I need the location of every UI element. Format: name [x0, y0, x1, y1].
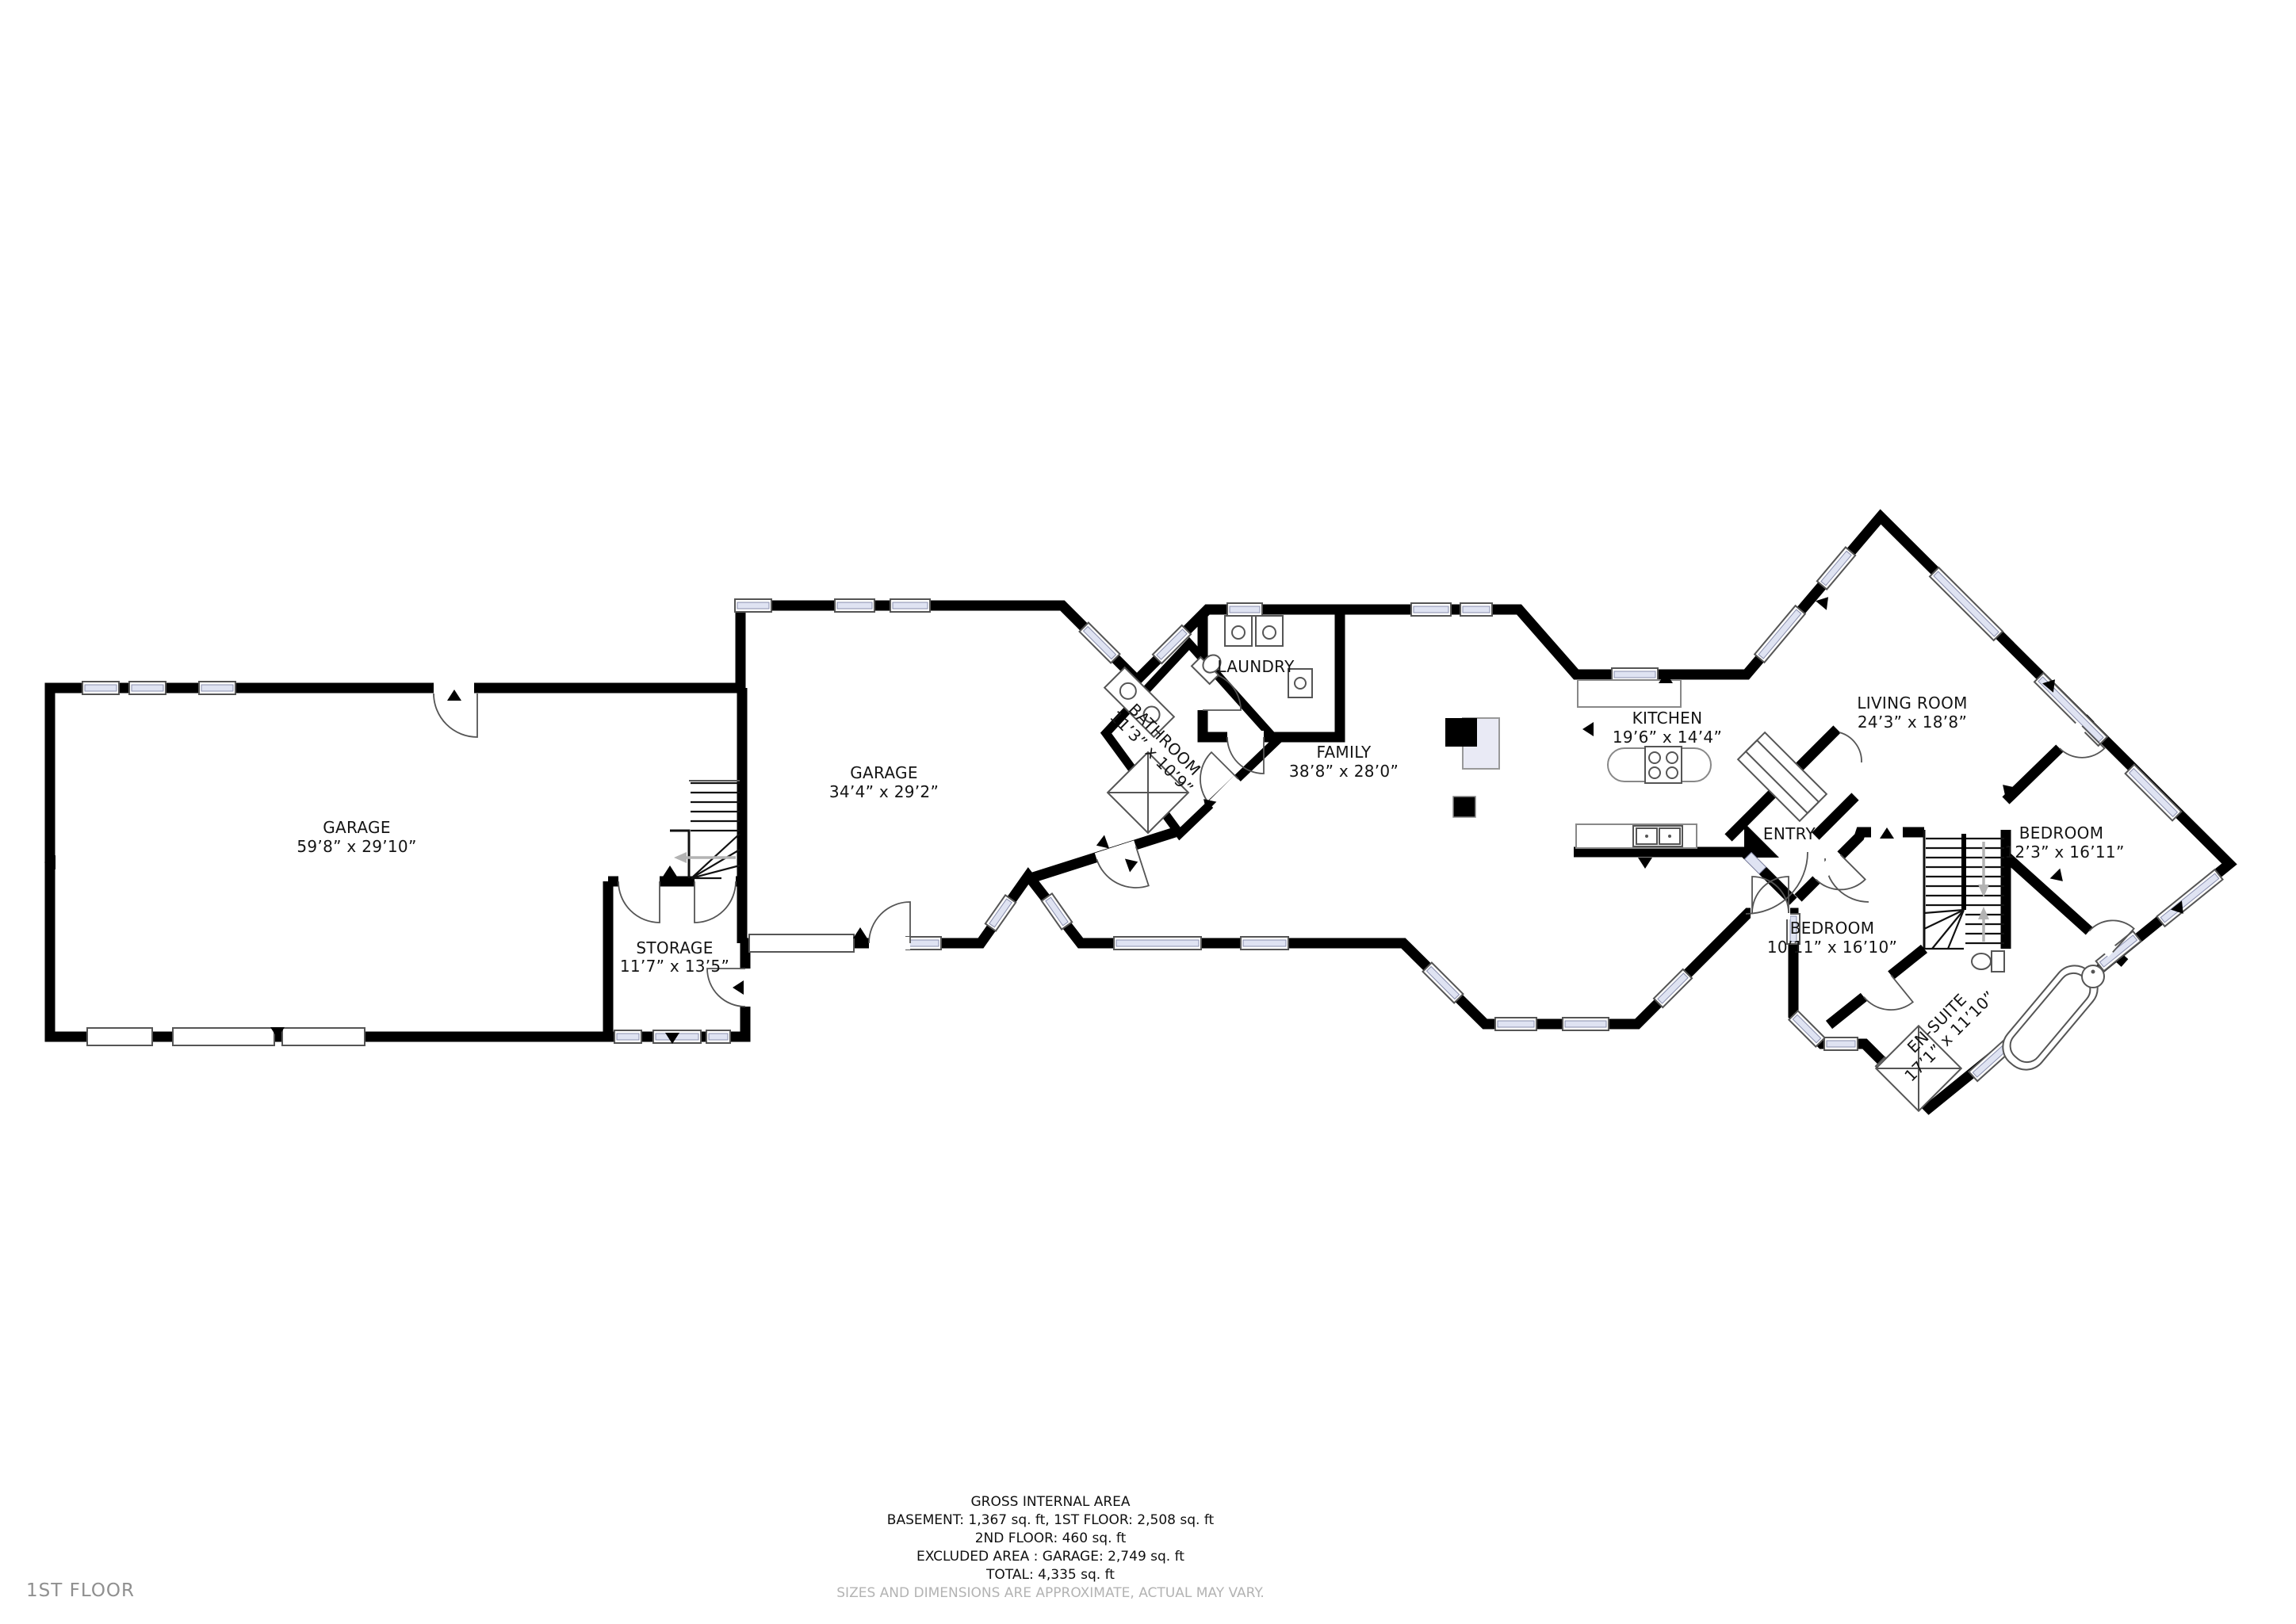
- laundry-name: LAUNDRY: [1217, 657, 1295, 676]
- bedroom-left-dims: 10’11” x 16’10”: [1767, 938, 1897, 957]
- entry-name: ENTRY: [1763, 824, 1816, 843]
- total-area: TOTAL: 4,335 sq. ft: [836, 1566, 1264, 1584]
- living-dims: 24’3” x 18’8”: [1858, 713, 1967, 732]
- ensuite-sink: [2082, 965, 2104, 988]
- storage-name: STORAGE: [636, 938, 713, 957]
- garage-second-name: GARAGE: [850, 763, 918, 782]
- kitchen-sink-counter: [1576, 824, 1697, 848]
- gross-internal-area-title: GROSS INTERNAL AREA: [836, 1493, 1264, 1511]
- garage-main-name: GARAGE: [323, 818, 391, 837]
- area-summary: GROSS INTERNAL AREA BASEMENT: 1,367 sq. …: [836, 1493, 1264, 1603]
- family-name: FAMILY: [1316, 743, 1371, 762]
- floor-label: 1ST FLOOR: [26, 1580, 135, 1601]
- kitchen-name: KITCHEN: [1632, 709, 1703, 728]
- bedroom-right-dims: 12’3” x 16’11”: [2004, 843, 2124, 862]
- room-storage: STORAGE 11’7” x 13’5”: [620, 938, 729, 976]
- bedroom-right-name: BEDROOM: [2019, 823, 2104, 843]
- floorplan-page: GARAGE 59’8” x 29’10” STORAGE 11’7” x 13…: [0, 0, 2296, 1624]
- kitchen-island: [1608, 747, 1711, 783]
- storage-dims: 11’7” x 13’5”: [620, 957, 729, 976]
- kitchen-dims: 19’6” x 14’4”: [1613, 728, 1722, 747]
- basement-first-floor-areas: BASEMENT: 1,367 sq. ft, 1ST FLOOR: 2,508…: [836, 1511, 1264, 1530]
- room-living: LIVING ROOM 24’3” x 18’8”: [1857, 694, 1967, 732]
- garage-main-dims: 59’8” x 29’10”: [297, 837, 416, 856]
- family-dims: 38’8” x 28’0”: [1289, 762, 1399, 781]
- bedroom-left-name: BEDROOM: [1790, 919, 1875, 938]
- dimensions-disclaimer: SIZES AND DIMENSIONS ARE APPROXIMATE, AC…: [836, 1584, 1264, 1603]
- excluded-garage-area: EXCLUDED AREA : GARAGE: 2,749 sq. ft: [836, 1548, 1264, 1566]
- living-name: LIVING ROOM: [1857, 694, 1967, 713]
- garage-second-dims: 34’4” x 29’2”: [829, 782, 939, 801]
- floor-plan-canvas: GARAGE 59’8” x 29’10” STORAGE 11’7” x 13…: [0, 0, 2296, 1624]
- second-floor-area: 2ND FLOOR: 460 sq. ft: [836, 1530, 1264, 1548]
